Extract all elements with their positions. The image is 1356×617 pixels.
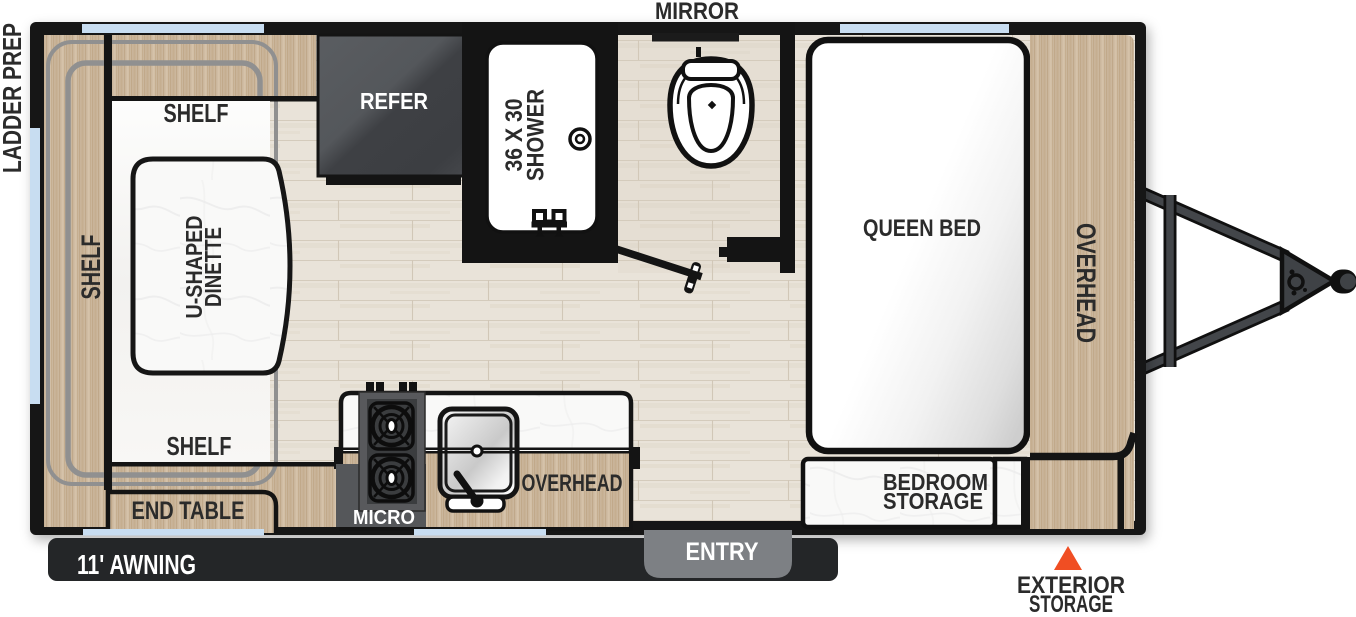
svg-text:DINETTE: DINETTE	[200, 227, 226, 307]
svg-text:OVERHEAD: OVERHEAD	[522, 470, 623, 497]
svg-text:REFER: REFER	[360, 88, 428, 114]
svg-text:SHELF: SHELF	[76, 235, 106, 300]
svg-text:ENTRY: ENTRY	[686, 538, 759, 566]
svg-text:SHELF: SHELF	[164, 98, 229, 128]
svg-text:STORAGE: STORAGE	[883, 488, 983, 514]
svg-text:SHELF: SHELF	[167, 431, 232, 461]
svg-text:MIRROR: MIRROR	[655, 0, 739, 25]
svg-text:MICRO: MICRO	[353, 507, 415, 529]
svg-text:LADDER PREP: LADDER PREP	[0, 23, 27, 173]
svg-text:STORAGE: STORAGE	[1029, 591, 1113, 617]
svg-text:SHOWER: SHOWER	[523, 89, 550, 181]
svg-text:END TABLE: END TABLE	[132, 497, 245, 525]
svg-text:QUEEN BED: QUEEN BED	[863, 215, 981, 242]
svg-text:OVERHEAD: OVERHEAD	[1071, 223, 1101, 343]
svg-text:11' AWNING: 11' AWNING	[77, 549, 196, 580]
